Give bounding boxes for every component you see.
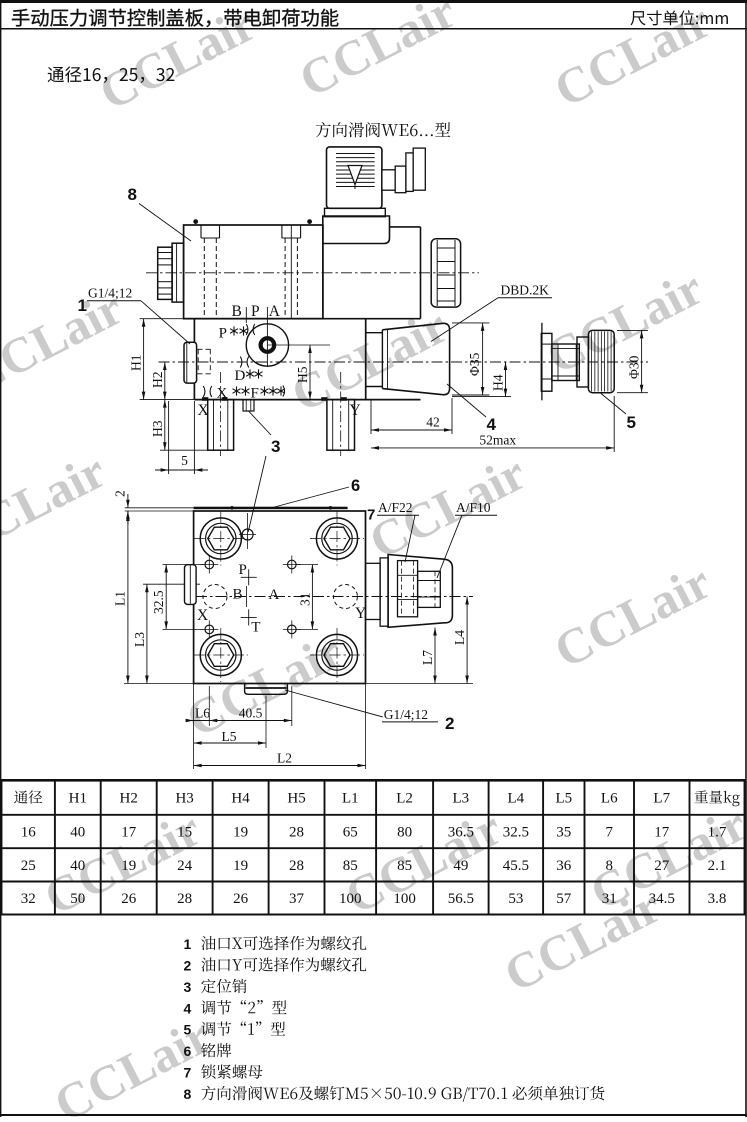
svg-text:Y: Y xyxy=(350,402,361,419)
svg-text:G1/4;12: G1/4;12 xyxy=(384,707,428,722)
svg-text:3: 3 xyxy=(184,979,192,995)
svg-text:8: 8 xyxy=(184,1086,192,1102)
svg-text:34.5: 34.5 xyxy=(649,891,675,907)
svg-text:24: 24 xyxy=(177,858,193,874)
svg-text:7: 7 xyxy=(184,1065,192,1081)
svg-text:50: 50 xyxy=(70,891,85,907)
svg-text:40: 40 xyxy=(70,858,85,874)
svg-text:H1: H1 xyxy=(69,791,87,807)
svg-text:H2: H2 xyxy=(150,372,165,389)
svg-text:A/F22: A/F22 xyxy=(378,500,413,515)
svg-text:5: 5 xyxy=(181,453,188,468)
svg-text:4: 4 xyxy=(184,1000,192,1016)
svg-text:25: 25 xyxy=(21,858,36,874)
svg-text:27: 27 xyxy=(654,858,670,874)
svg-text:H5: H5 xyxy=(295,366,310,383)
svg-text:32: 32 xyxy=(21,891,36,907)
svg-text:31: 31 xyxy=(297,593,312,607)
svg-text:2: 2 xyxy=(184,957,192,973)
svg-text:H5: H5 xyxy=(287,791,305,807)
svg-text:P: P xyxy=(251,303,260,320)
svg-text:Φ35: Φ35 xyxy=(467,352,482,376)
svg-text:57: 57 xyxy=(556,891,572,907)
svg-text:P: P xyxy=(239,562,247,578)
svg-text:32.5: 32.5 xyxy=(503,825,529,841)
svg-text:19: 19 xyxy=(121,858,136,874)
svg-text:37: 37 xyxy=(289,891,305,907)
svg-text:40: 40 xyxy=(70,825,85,841)
svg-text:3.8: 3.8 xyxy=(708,891,727,907)
svg-text:17: 17 xyxy=(121,825,137,841)
svg-text:A/F10: A/F10 xyxy=(456,500,491,515)
svg-text:7: 7 xyxy=(367,507,375,524)
svg-text:H2: H2 xyxy=(120,791,138,807)
svg-text:32.5: 32.5 xyxy=(151,590,166,614)
svg-text:L4: L4 xyxy=(452,630,467,645)
svg-text:49: 49 xyxy=(453,858,468,874)
svg-text:53: 53 xyxy=(508,891,523,907)
svg-text:7: 7 xyxy=(606,825,614,841)
svg-text:5: 5 xyxy=(627,413,636,432)
svg-text:36.5: 36.5 xyxy=(448,825,474,841)
svg-text:T: T xyxy=(251,620,260,636)
svg-text:42: 42 xyxy=(426,415,440,430)
svg-text:H4: H4 xyxy=(231,791,250,807)
svg-text:L7: L7 xyxy=(420,650,435,665)
svg-text:1: 1 xyxy=(184,936,192,952)
svg-text:P: P xyxy=(219,326,227,342)
svg-text:28: 28 xyxy=(177,891,192,907)
svg-text:L1: L1 xyxy=(342,791,359,807)
svg-text:45.5: 45.5 xyxy=(503,858,529,874)
svg-text:Y: Y xyxy=(355,605,366,622)
svg-text:26: 26 xyxy=(121,891,137,907)
svg-text:28: 28 xyxy=(289,825,304,841)
svg-text:8: 8 xyxy=(606,858,614,874)
svg-text:Φ30: Φ30 xyxy=(627,355,642,379)
svg-text:H3: H3 xyxy=(150,420,165,437)
svg-text:31: 31 xyxy=(602,891,617,907)
svg-text:1: 1 xyxy=(78,296,87,315)
svg-text:L2: L2 xyxy=(277,751,292,766)
svg-text:L3: L3 xyxy=(132,632,147,647)
svg-text:19: 19 xyxy=(233,825,248,841)
svg-text:15: 15 xyxy=(177,825,192,841)
svg-text:80: 80 xyxy=(397,825,412,841)
svg-text:L3: L3 xyxy=(453,791,470,807)
svg-text:36: 36 xyxy=(556,858,572,874)
svg-text:6: 6 xyxy=(184,1043,192,1059)
svg-text:A: A xyxy=(269,303,281,320)
svg-text:B: B xyxy=(232,303,242,320)
svg-text:5: 5 xyxy=(184,1022,192,1038)
svg-text:A: A xyxy=(269,587,280,603)
svg-text:65: 65 xyxy=(343,825,358,841)
svg-text:L2: L2 xyxy=(396,791,413,807)
svg-text:X: X xyxy=(198,402,209,419)
svg-text:2: 2 xyxy=(113,490,128,497)
svg-text:L6: L6 xyxy=(601,791,618,807)
svg-text:40.5: 40.5 xyxy=(239,706,263,721)
svg-text:L5: L5 xyxy=(222,729,237,744)
svg-text:H1: H1 xyxy=(129,355,144,372)
svg-text:L6: L6 xyxy=(195,706,210,721)
svg-text:28: 28 xyxy=(289,858,304,874)
svg-text:H4: H4 xyxy=(491,374,506,391)
svg-text:4: 4 xyxy=(487,415,497,434)
svg-text:L4: L4 xyxy=(508,791,525,807)
svg-text:G1/4;12: G1/4;12 xyxy=(88,286,132,301)
svg-text:2: 2 xyxy=(445,714,454,733)
svg-text:19: 19 xyxy=(233,858,248,874)
svg-text:2.1: 2.1 xyxy=(708,858,727,874)
svg-text:52max: 52max xyxy=(479,433,516,448)
svg-text:L7: L7 xyxy=(653,791,670,807)
svg-text:DBD.2K: DBD.2K xyxy=(501,283,550,298)
svg-text:17: 17 xyxy=(654,825,670,841)
svg-text:3: 3 xyxy=(271,437,280,456)
svg-text:85: 85 xyxy=(397,858,412,874)
svg-text:X: X xyxy=(197,607,208,624)
svg-text:100: 100 xyxy=(393,891,416,907)
svg-text:56.5: 56.5 xyxy=(448,891,474,907)
svg-text:D: D xyxy=(235,368,246,384)
svg-text:1.7: 1.7 xyxy=(708,825,727,841)
svg-text:26: 26 xyxy=(233,891,249,907)
svg-text:6: 6 xyxy=(351,477,360,495)
svg-text:L5: L5 xyxy=(555,791,572,807)
svg-text:16: 16 xyxy=(21,825,37,841)
svg-text:35: 35 xyxy=(556,825,571,841)
svg-text:8: 8 xyxy=(128,185,137,204)
svg-text:H3: H3 xyxy=(175,791,193,807)
svg-text:L1: L1 xyxy=(113,591,128,606)
svg-text:100: 100 xyxy=(339,891,362,907)
svg-text:85: 85 xyxy=(343,858,358,874)
svg-text:B: B xyxy=(233,587,243,603)
